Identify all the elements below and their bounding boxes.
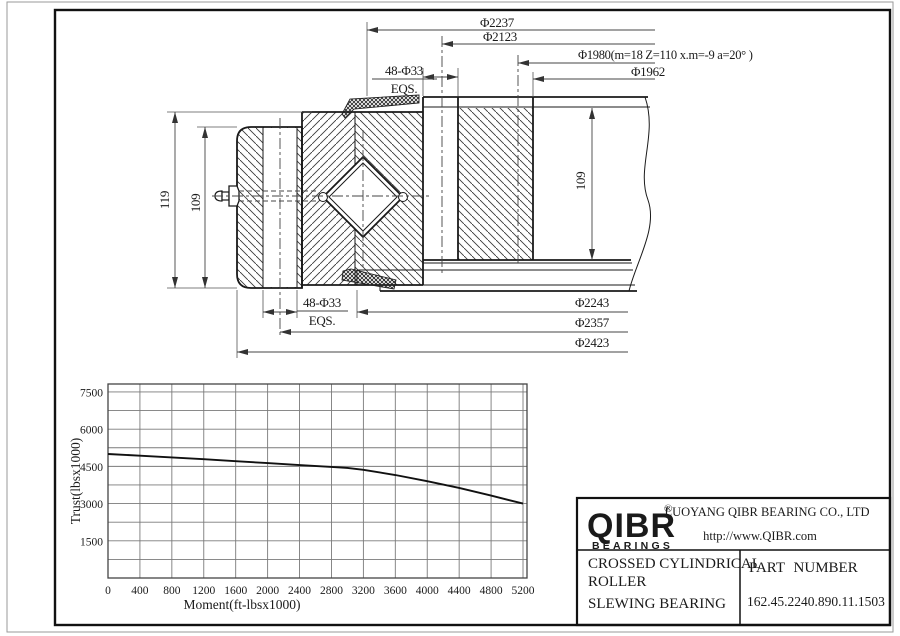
dim-label-109-left: 109	[188, 194, 203, 213]
chart-x-tick: 0	[105, 585, 111, 597]
chart-plot-border	[108, 384, 527, 578]
chart-x-tick: 4000	[416, 585, 439, 597]
dim-label-gear: Φ1980(m=18 Z=110 x.m=-9 a=20° )	[578, 48, 753, 62]
chart-x-tick: 2800	[320, 585, 343, 597]
dim-label-phi2243: Φ2243	[575, 295, 609, 310]
load-chart: 0400800120016002000240028003200360040004…	[68, 384, 535, 612]
chart-x-tick: 5200	[512, 585, 535, 597]
chart-x-tick: 1600	[224, 585, 247, 597]
dim-label-phi2237: Φ2237	[480, 15, 515, 30]
part-number-value: 162.45.2240.890.11.1503	[747, 594, 885, 609]
chart-x-tick: 3200	[352, 585, 375, 597]
chart-x-tick: 3600	[384, 585, 407, 597]
ring-gear-section	[423, 97, 650, 260]
outer-ring-left	[237, 127, 302, 288]
chart-x-tick: 2000	[256, 585, 279, 597]
part-number-label: PART NUMBER	[749, 560, 858, 576]
dim-label-phi1962: Φ1962	[631, 64, 665, 79]
drawing-sheet: Φ2237 Φ2123 Φ1980(m=18 Z=110 x.m=-9 a=20…	[0, 0, 900, 636]
engineering-drawing: Φ2237 Φ2123 Φ1980(m=18 Z=110 x.m=-9 a=20…	[0, 0, 900, 636]
dim-label-bolt-bottom: 48-Φ33	[303, 295, 341, 310]
chart-y-tick: 6000	[80, 425, 103, 437]
dim-label-phi2123: Φ2123	[483, 29, 517, 44]
dim-label-bolt-bottom-eqs: EQS.	[309, 313, 336, 328]
dim-label-bolt-top-eqs: EQS.	[391, 81, 418, 96]
product-name-line2: ROLLER	[588, 574, 646, 590]
chart-x-tick: 4400	[448, 585, 471, 597]
load-curve	[108, 454, 523, 504]
title-block: QIBR ® BEARINGS LUOYANG QIBR BEARING CO.…	[577, 498, 890, 625]
dim-label-phi2423: Φ2423	[575, 335, 609, 350]
chart-x-tick: 4800	[480, 585, 503, 597]
chart-y-tick: 4500	[80, 462, 103, 474]
company-name: LUOYANG QIBR BEARING CO., LTD	[664, 505, 869, 519]
chart-x-tick: 800	[163, 585, 181, 597]
chart-x-axis-label: Moment(ft-lbsx1000)	[184, 597, 301, 612]
website-url: http://www.QIBR.com	[703, 529, 817, 543]
chart-y-axis-label: Trust(lbsx1000)	[68, 438, 83, 525]
chart-x-tick: 400	[131, 585, 149, 597]
dim-label-119: 119	[157, 191, 172, 209]
break-line	[629, 97, 651, 291]
chart-x-tick: 2400	[288, 585, 311, 597]
product-name-line3: SLEWING BEARING	[588, 596, 726, 612]
qibr-logo-sub: BEARINGS	[592, 540, 673, 552]
chart-y-tick: 7500	[80, 387, 103, 399]
dim-label-phi2357: Φ2357	[575, 315, 610, 330]
dim-label-bolt-top: 48-Φ33	[385, 63, 423, 78]
chart-x-tick: 1200	[192, 585, 215, 597]
chart-y-tick: 3000	[80, 499, 103, 511]
dim-label-109-right: 109	[573, 172, 588, 191]
chart-y-tick: 1500	[80, 536, 103, 548]
product-name-line1: CROSSED CYLINDRICAL	[588, 556, 761, 572]
